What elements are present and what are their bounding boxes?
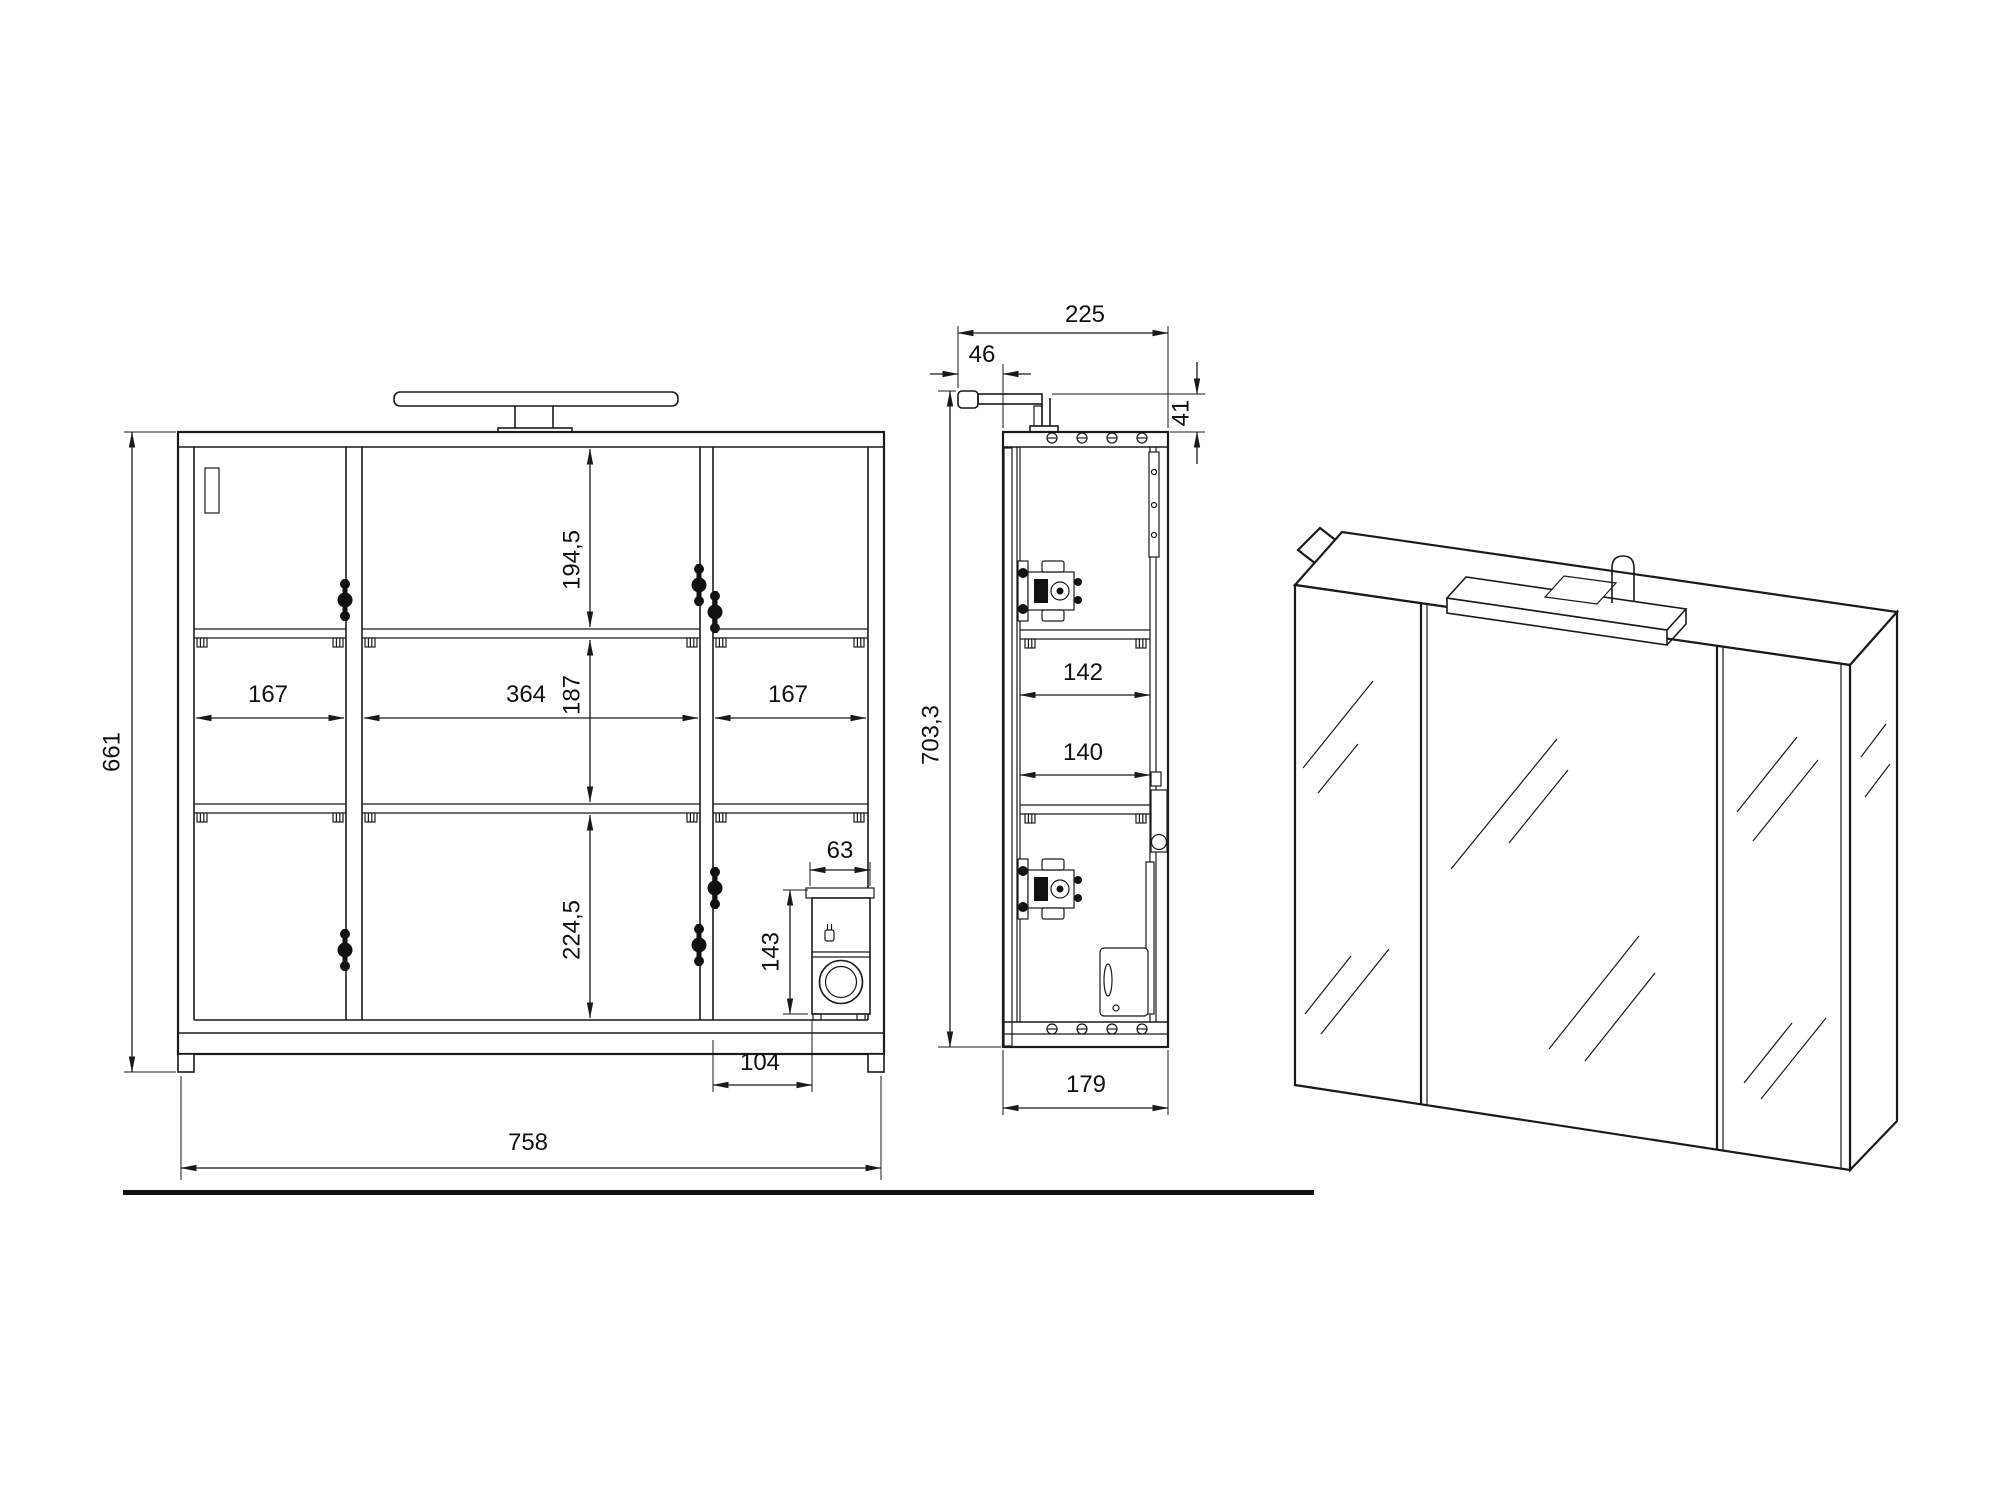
dim-front-overall-height: 661 — [98, 732, 125, 772]
dim-side-body-depth: 179 — [1066, 1071, 1106, 1098]
dim-side-light-height: 41 — [1167, 400, 1194, 427]
socket-box — [806, 888, 874, 1020]
dim-socket-height: 143 — [757, 932, 784, 972]
dim-side-total-depth: 225 — [1065, 301, 1105, 328]
light-fixture-front-icon — [394, 392, 678, 436]
dim-side-upper-shelf-depth: 142 — [1063, 659, 1103, 686]
dim-front-bottom-section: 224,5 — [558, 900, 585, 960]
dim-socket-offset: 104 — [740, 1049, 780, 1076]
cabinet-technical-drawing: 661 194,5 187 224,5 167 364 167 63 143 — [0, 0, 2000, 1499]
ground-line — [123, 1190, 1314, 1195]
light-fixture-side-icon — [958, 391, 1058, 433]
front-view: 661 194,5 187 224,5 167 364 167 63 143 — [98, 392, 884, 1180]
dim-front-overall-width: 758 — [508, 1129, 548, 1156]
front-carcass — [178, 432, 884, 1072]
dim-side-light-overhang: 46 — [969, 341, 996, 368]
dim-side-lower-shelf-depth: 140 — [1063, 739, 1103, 766]
dim-front-center-compartment: 364 — [506, 681, 546, 708]
perspective-view — [1295, 528, 1897, 1170]
dim-front-middle-section: 187 — [558, 675, 585, 715]
dim-front-top-section: 194,5 — [558, 530, 585, 590]
dim-side-total-height: 703,3 — [917, 705, 944, 765]
dim-front-left-compartment: 167 — [248, 681, 288, 708]
dim-socket-width: 63 — [827, 837, 854, 864]
side-view: 225 46 41 703,3 142 140 179 — [917, 301, 1205, 1115]
dim-front-right-compartment: 167 — [768, 681, 808, 708]
technical-drawing-page: 661 194,5 187 224,5 167 364 167 63 143 — [0, 0, 2000, 1499]
